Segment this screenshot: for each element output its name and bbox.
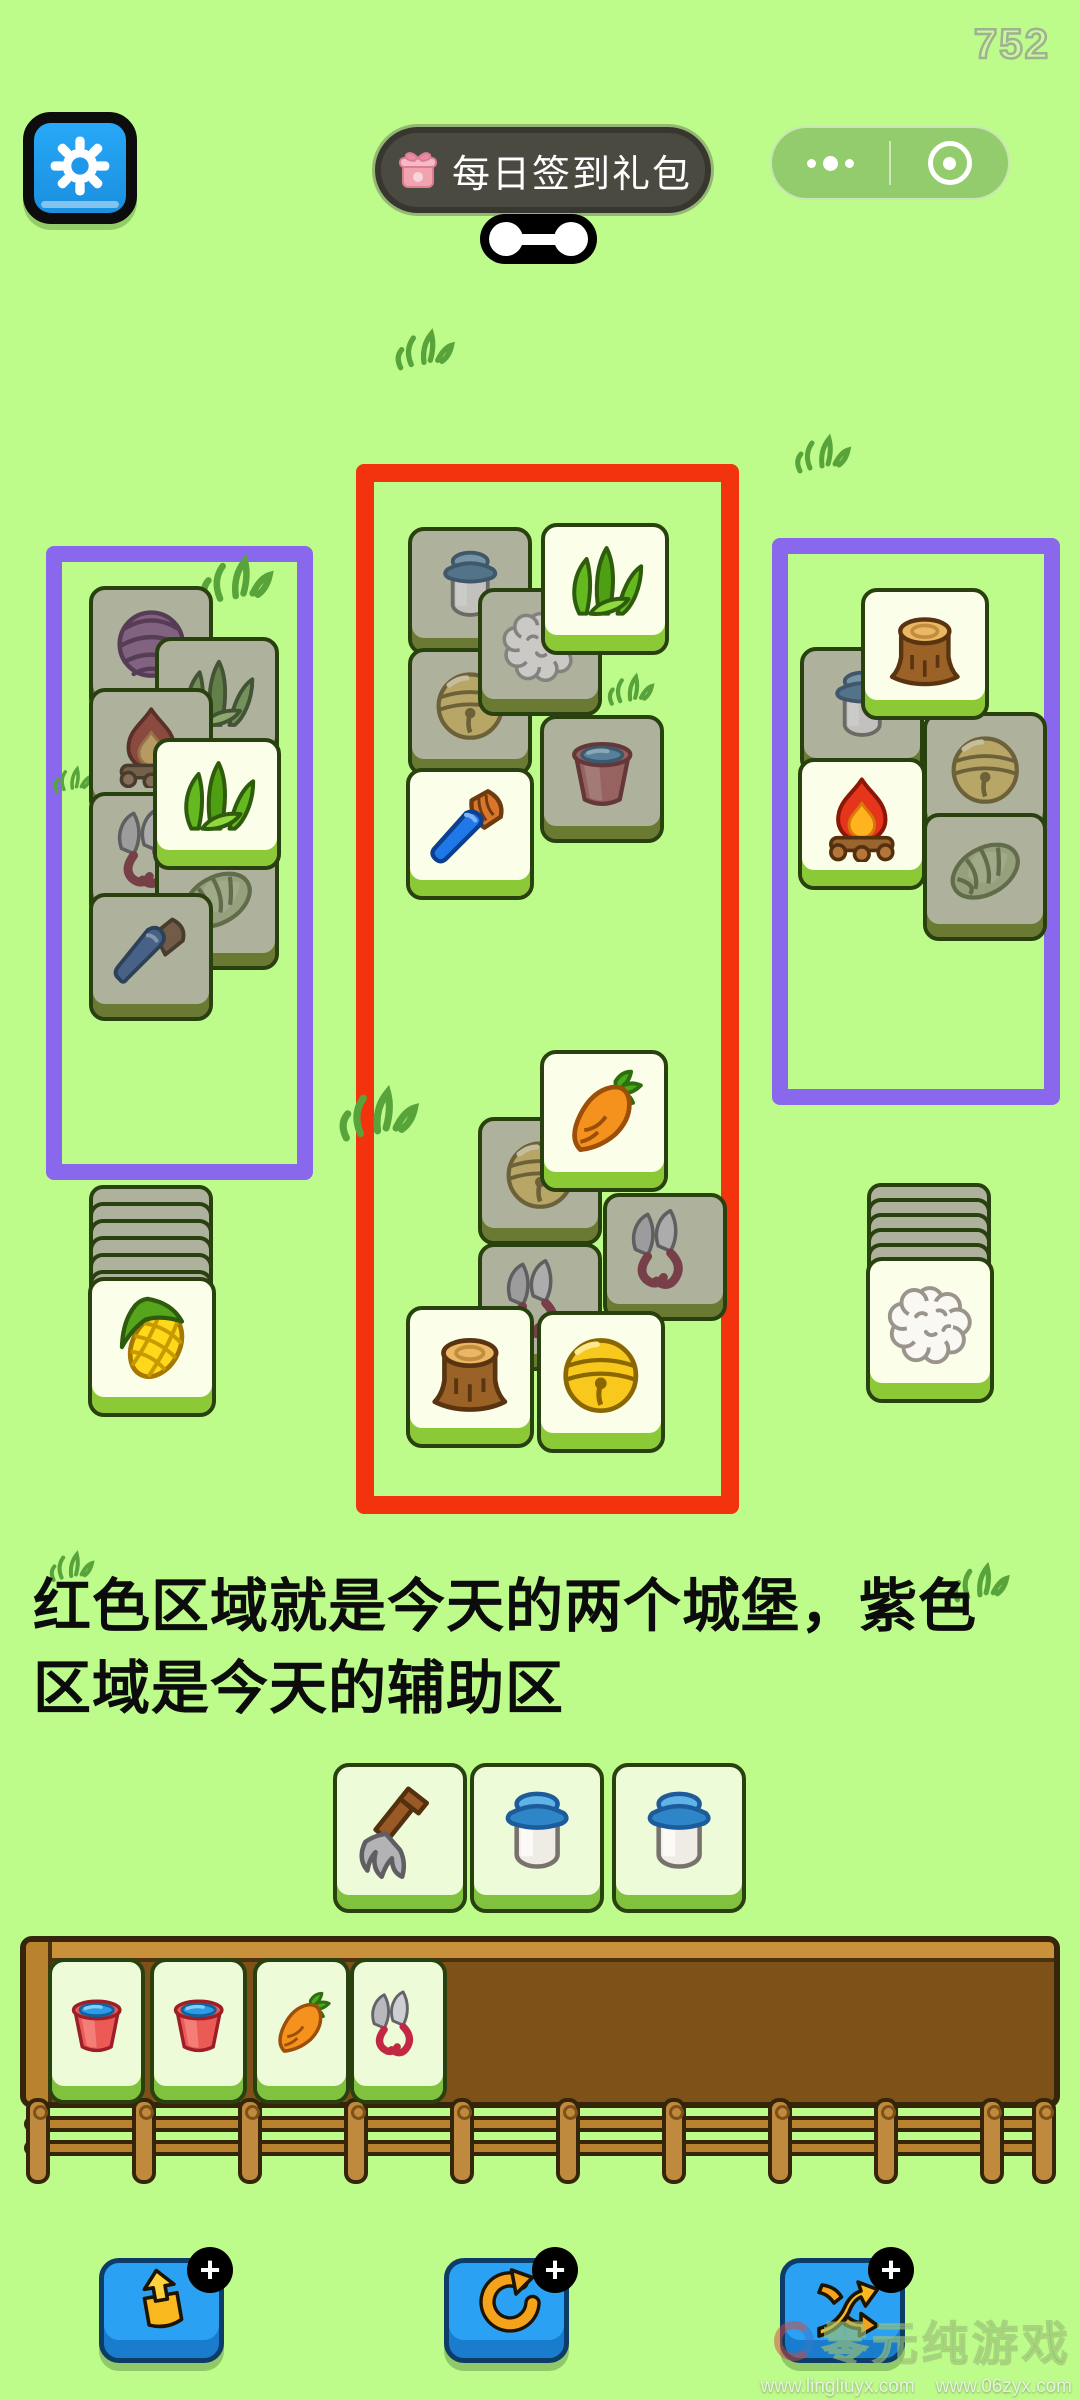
corn-icon [92,1281,212,1401]
tile-shears[interactable] [603,1193,727,1321]
lettuce-icon [927,817,1043,925]
plus-badge[interactable]: + [532,2247,578,2293]
tile-fire[interactable] [798,758,926,890]
daily-signin-button[interactable]: 每日签到礼包 [375,127,711,213]
tile-bucket[interactable] [48,1958,145,2104]
plus-badge[interactable]: + [187,2247,233,2293]
bucket-icon [154,1962,243,2088]
tile-brush[interactable] [406,768,534,900]
fire-icon [802,762,922,874]
shears-icon [354,1962,443,2088]
tile-fork[interactable] [333,1763,467,1913]
exit-button[interactable] [891,141,1008,185]
drag-handle[interactable] [480,214,597,264]
tile-bell[interactable] [537,1311,665,1453]
grass-icon [157,742,277,854]
plus-badge[interactable]: + [868,2247,914,2293]
watermark-urls: www.lingliuyx.com www.06zyx.com [761,2376,1072,2398]
milk-icon [474,1767,600,1897]
fence-post [450,2098,474,2184]
grass-icon [545,527,665,639]
tile-bucket[interactable] [540,715,664,843]
fence-plank [24,2116,1056,2132]
tile-carrot[interactable] [253,1958,350,2104]
grass-doodle-icon [336,1074,422,1145]
bucket-icon [52,1962,141,2088]
wool-icon [870,1261,990,1387]
tile-knife[interactable] [89,893,213,1021]
tile-stump[interactable] [861,588,989,720]
hint-line2: 区域是今天的辅助区 [33,1648,977,1730]
fence-post [344,2098,368,2184]
hint-text: 红色区域就是今天的两个城堡，紫色 区域是今天的辅助区 [33,1566,977,1730]
tile-bucket[interactable] [150,1958,247,2104]
more-button[interactable] [772,156,889,171]
fence-post [238,2098,262,2184]
level-counter: 752 [974,20,1050,68]
grass-doodle-icon [606,666,656,708]
fence-post [980,2098,1004,2184]
tile-corn[interactable] [88,1277,216,1417]
fork-icon [337,1767,463,1897]
stump-icon [865,592,985,704]
daily-signin-label: 每日签到礼包 [452,143,692,198]
tile-grass[interactable] [541,523,669,655]
miniprogram-capsule [770,126,1010,200]
carrot-icon [257,1962,346,2088]
knife-icon [93,897,209,1005]
carrot-icon [544,1054,664,1176]
tile-grass[interactable] [153,738,281,870]
more-dots-icon [807,159,816,168]
hint-line1: 红色区域就是今天的两个城堡，紫色 [33,1566,977,1648]
fence-post [132,2098,156,2184]
fence-plank [24,2140,1056,2156]
tile-shears[interactable] [350,1958,447,2104]
shears-icon [607,1197,723,1305]
watermark-title: 零元纯游戏 [822,2308,1072,2374]
tile-carrot[interactable] [540,1050,668,1192]
tile-lettuce[interactable] [923,813,1047,941]
fence-post [26,2098,50,2184]
fence-post [556,2098,580,2184]
settings-button[interactable] [23,112,137,224]
tile-wool[interactable] [866,1257,994,1403]
milk-icon [616,1767,742,1897]
watermark: 零元纯游戏 www.lingliuyx.com www.06zyx.com [761,2308,1072,2398]
bucket-icon [544,719,660,827]
tile-milk[interactable] [470,1763,604,1913]
game-screen: 752 每日签到礼包 红色区域就是今天的两个城堡，紫色 区域是今天的辅助区 + … [0,0,1080,2400]
target-icon [928,141,972,185]
grass-doodle-icon [52,760,94,795]
stump-icon [410,1310,530,1432]
takeout-button[interactable]: + [99,2258,224,2363]
gift-icon [394,146,442,194]
tile-milk[interactable] [612,1763,746,1913]
fence-post [874,2098,898,2184]
fence-post [1032,2098,1056,2184]
tile-stump[interactable] [406,1306,534,1448]
watermark-logo-icon [774,2321,814,2361]
bell-icon [541,1315,661,1437]
fence-post [768,2098,792,2184]
brush-icon [410,772,530,884]
gear-icon [48,134,112,203]
fence-post [662,2098,686,2184]
undo-button[interactable]: + [444,2258,569,2363]
grass-doodle-icon [793,426,853,476]
grass-doodle-icon [393,320,457,373]
bell-icon [927,716,1043,824]
